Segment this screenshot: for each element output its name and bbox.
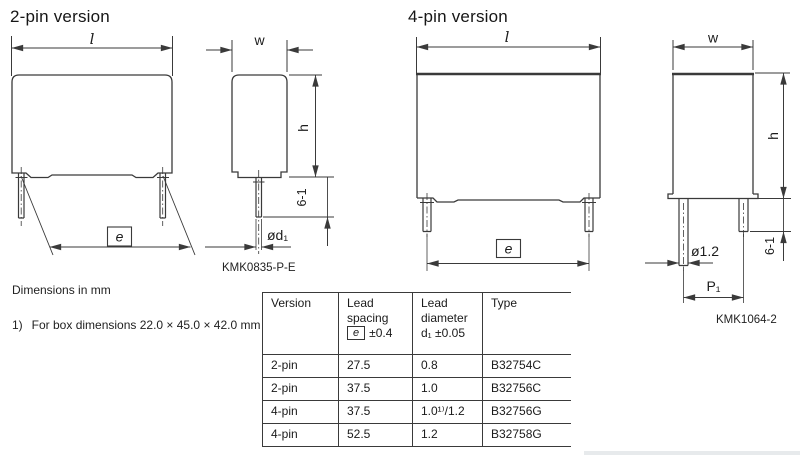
dim-label-lead-length-2pin: 6-1: [295, 188, 309, 206]
col-header-lead-spacing: Lead spacing e±0.4: [339, 293, 413, 355]
cell-type: B32754C: [483, 355, 571, 378]
cell-spacing: 37.5: [339, 401, 413, 424]
four-pin-side-drawing: w h 6-1 ø1.2 P₁: [645, 30, 791, 304]
dim-label-height-2pin: h: [295, 124, 311, 132]
footnote-text: For box dimensions 22.0 × 45.0 × 42.0 mm: [32, 318, 261, 332]
footnote-marker: 1): [12, 318, 23, 332]
units-note: Dimensions in mm: [12, 283, 111, 297]
drawing-code-4pin: KMK1064-2: [716, 314, 777, 326]
datasheet-page: 2-pin version 4-pin version l e: [0, 0, 800, 455]
cell-diameter: 1.0¹⁾/1.2: [413, 401, 483, 424]
col-header-type: Type: [483, 293, 571, 355]
dim-label-width-2pin: w: [253, 32, 265, 48]
two-pin-front-drawing: l e: [12, 30, 196, 255]
cell-version: 2-pin: [263, 355, 339, 378]
table-row: 4-pin 52.5 1.2 B32758G: [263, 424, 571, 447]
drawing-code-2pin: KMK0835-P-E: [222, 262, 296, 274]
dim-label-spacing-4pin: e: [505, 241, 513, 257]
cell-version: 2-pin: [263, 378, 339, 401]
dim-label-lead-diameter-4pin: ø1.2: [691, 243, 719, 259]
dim-label-spacing-2pin: e: [116, 229, 124, 245]
two-pin-side-drawing: w h 6-1 ød₁: [205, 32, 334, 254]
cell-type: B32756C: [483, 378, 571, 401]
four-pin-front-drawing: l e: [416, 28, 601, 271]
lead-spacing-table: Version Lead spacing e±0.4 Lead diameter…: [262, 292, 571, 447]
dim-label-lead-diameter-2pin: ød₁: [267, 227, 288, 243]
cell-spacing: 37.5: [339, 378, 413, 401]
cell-spacing: 52.5: [339, 424, 413, 447]
col-header-version: Version: [263, 293, 339, 355]
table-row: 2-pin 37.5 1.0 B32756C: [263, 378, 571, 401]
dim-label-length-4pin: l: [505, 28, 510, 46]
table-row: 2-pin 27.5 0.8 B32754C: [263, 355, 571, 378]
cell-diameter: 1.0: [413, 378, 483, 401]
cell-spacing: 27.5: [339, 355, 413, 378]
cell-diameter: 1.2: [413, 424, 483, 447]
cell-version: 4-pin: [263, 401, 339, 424]
dim-label-pitch-4pin: P₁: [706, 278, 720, 294]
table-header-row: Version Lead spacing e±0.4 Lead diameter…: [263, 293, 571, 355]
cell-type: B32756G: [483, 401, 571, 424]
dim-label-lead-length-4pin: 6-1: [763, 237, 777, 255]
dim-label-length-2pin: l: [90, 30, 95, 48]
datum-e-symbol: e: [347, 326, 365, 340]
cell-version: 4-pin: [263, 424, 339, 447]
table-row: 4-pin 37.5 1.0¹⁾/1.2 B32756G: [263, 401, 571, 424]
spacing-tolerance: ±0.4: [369, 326, 392, 340]
page-edge-strip: [584, 451, 800, 455]
col-header-lead-diameter: Lead diameter d₁ ±0.05: [413, 293, 483, 355]
dim-label-width-4pin: w: [707, 30, 719, 46]
footnote: 1)For box dimensions 22.0 × 45.0 × 42.0 …: [12, 318, 260, 332]
dim-label-height-4pin: h: [765, 132, 781, 140]
cell-type: B32758G: [483, 424, 571, 447]
cell-diameter: 0.8: [413, 355, 483, 378]
